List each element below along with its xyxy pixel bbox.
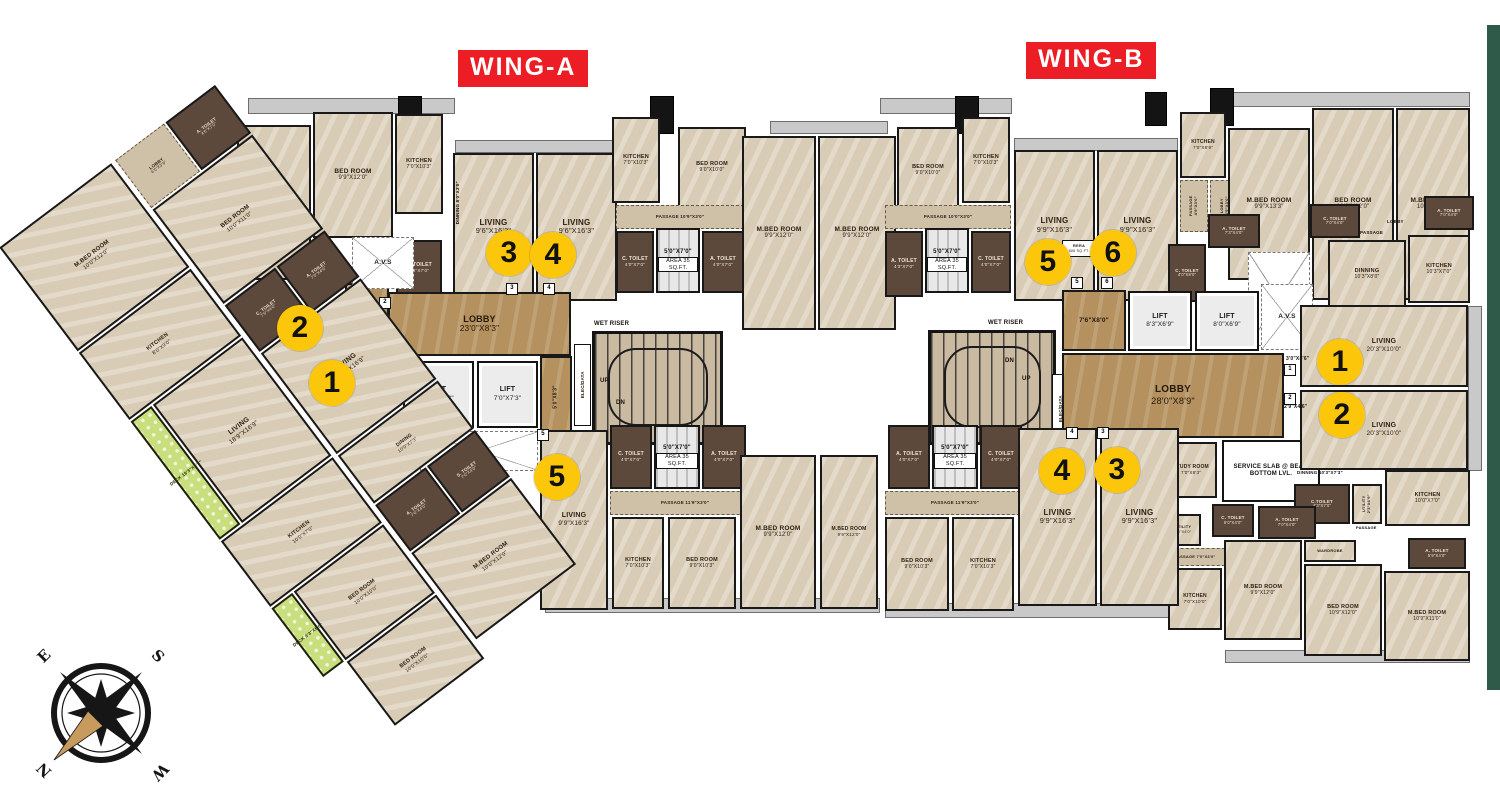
a-toilet: A. TOILET4'0"X7'0" [888, 425, 930, 489]
5-0-x7-0: 5'0"X7'0"AREA 35 SQ.FT. [656, 228, 700, 293]
a-toilet: A. TOILET5'9"X4'0" [1408, 538, 1466, 569]
passage-10-9-x3-0: PASSAGE 10'9"X3'0" [616, 205, 744, 229]
c-toilet: C. TOILET4'0"X7'0" [610, 425, 652, 489]
lift: LIFT8'0"X6'9" [1195, 291, 1259, 351]
wing-b-title: WING-B [1026, 42, 1156, 79]
7-6-x8-0: 7'6"X8'0" [1062, 290, 1126, 351]
balcony [1468, 306, 1482, 471]
kitchen: KITCHEN7'0"X10'3" [612, 517, 664, 609]
kitchen: KITCHEN7'0"X10'3" [612, 117, 660, 203]
wardrobe: WARDROBE [1304, 540, 1356, 562]
5-0-x8-3: 5'0"X8'3" [540, 356, 572, 438]
5-0-x7-0: 5'0"X7'0"AREA 35 SQ.FT. [654, 425, 700, 489]
lift: LIFT8'3"X6'9" [1128, 291, 1192, 351]
elec-data: ELEC/DATA [574, 344, 591, 426]
5-0-x7-0: 5'0"X7'0"AREA 35 SQ.FT. [932, 425, 978, 489]
bed-room: BED ROOM9'0"X10'0" [678, 127, 746, 207]
unit-marker-wing-b-5: 5 [1025, 239, 1071, 285]
passage-10-0-x3-0: PASSAGE 10'0"X3'0" [885, 205, 1011, 229]
bed-room: BED ROOM9'9"X12'0" [313, 112, 393, 238]
living: LIVING9'6"X16'3" [453, 153, 534, 301]
passage-11-9-x3-0: PASSAGE 11'9"X3'0" [885, 491, 1025, 515]
dn: DN [616, 400, 625, 407]
c-toilet: C. TOILET4'0"X7'0" [971, 231, 1011, 293]
m-bed-room: M.BED ROOM9'9"X12'0" [740, 455, 816, 609]
unit-marker-wing-b-3: 3 [1094, 447, 1140, 493]
lobby: LOBBY28'0"X8'9" [1062, 353, 1284, 438]
dinning-10-3-x7-3: DINNING 10'3"X7'3" [1297, 470, 1343, 475]
compass-letter-s: S [148, 646, 168, 666]
kitchen: KITCHEN7'0"X10'3" [395, 114, 443, 214]
wet-riser: WET RISER [988, 320, 1023, 327]
passage-11-9-x3-0: PASSAGE 11'9"X3'0" [610, 491, 760, 515]
bed-room: BED ROOM9'0"X10'3" [668, 517, 736, 609]
unit-marker-wing-b-1: 1 [1317, 339, 1363, 385]
compass-letter-e: E [34, 646, 55, 667]
c-toilet: C. TOILET7'0"X4'0" [1310, 204, 1360, 238]
stair-flight-guide [608, 348, 708, 426]
bed-room: BED ROOM9'0"X10'3" [885, 517, 949, 611]
a-toilet: A. TOILET7'3"X4'0" [1208, 214, 1260, 248]
m-bed-room: M.BED ROOM9'9"X12'0" [742, 136, 816, 330]
bed-room: BED ROOM9'0"X10'0" [897, 127, 959, 213]
passage: PASSAGE [1360, 230, 1383, 235]
living: LIVING9'6"X16'3" [536, 153, 617, 301]
3-0-x8-6: 3'0"X8'6" [1286, 356, 1309, 362]
lift: LIFT7'0"X7'3" [477, 361, 538, 428]
compass-letter-n: N [33, 759, 56, 782]
floor-plan: WING-A WING-B E S W N M.BED ROOM9'9"X13'… [0, 0, 1500, 791]
a-toilet: A. TOILET7'0"X4'0" [1258, 506, 1316, 539]
c-toilet: C. TOILET4'0"X7'0" [980, 425, 1022, 489]
kitchen: KITCHEN7'0"X8'9" [1180, 112, 1226, 178]
a-toilet: A. TOILET4'3"X7'0" [885, 231, 923, 297]
m-bed-room: M.BED ROOM10'9"X11'0" [1384, 571, 1470, 661]
unit-marker-wing-a-2: 2 [277, 305, 323, 351]
door-tag-4: 4 [543, 283, 555, 295]
door-tag-5: 5 [537, 429, 549, 441]
lobby: LOBBY [1387, 219, 1404, 224]
c-toilet: C. TOILET4'0"X7'0" [616, 231, 654, 293]
duct-shaft [1145, 92, 1167, 126]
dinning-8-0-x3-0: DINNING 8'0"X3'0" [436, 200, 479, 205]
a-toilet: A. TOILET7'0"X4'0" [1424, 196, 1474, 230]
site-boundary [1487, 25, 1500, 690]
door-tag-2: 2 [1284, 393, 1296, 405]
compass-rose: E S W N [26, 638, 176, 788]
unit-marker-wing-b-4: 4 [1039, 448, 1085, 494]
lobby: LOBBY23'0"X8'3" [388, 292, 571, 356]
door-tag-6: 6 [1101, 277, 1113, 289]
unit-marker-wing-a-1: 1 [309, 360, 355, 406]
wet-riser: WET RISER [594, 321, 629, 328]
c-toilet: C. TOILET5'0"X4'0" [1212, 504, 1254, 537]
m-bed-room: M.BED ROOM9'9"X12'0" [820, 455, 878, 609]
a-toilet: A. TOILET4'0"X7'0" [702, 231, 744, 293]
balcony [770, 121, 888, 134]
balcony [455, 140, 618, 153]
kitchen: KITCHEN10'3"X7'0" [1408, 235, 1470, 303]
passage: PASSAGE [1356, 526, 1377, 531]
door-tag-5: 5 [1071, 277, 1083, 289]
unit-marker-wing-a-3: 3 [486, 230, 532, 276]
kitchen: KITCHEN7'0"X10'3" [962, 117, 1010, 203]
unit-marker-wing-b-2: 2 [1319, 392, 1365, 438]
kitchen: KITCHEN10'0"X7'0" [1385, 470, 1470, 526]
passage-4-9-x3-0: PASSAGE 4'9"X3'0" [1180, 180, 1208, 232]
balcony [1225, 92, 1470, 107]
door-tag-3: 3 [1097, 427, 1109, 439]
utility-2-3-x6-9: UTILITY 2'3"X6'9" [1352, 484, 1382, 524]
door-tag-4: 4 [1066, 427, 1078, 439]
door-tag-3: 3 [506, 283, 518, 295]
wing-a-title: WING-A [458, 50, 588, 87]
dinning: DINNING10'3"X8'0" [1328, 240, 1406, 308]
kitchen: KITCHEN7'0"X10'3" [952, 517, 1014, 611]
m-bed-room: M.BED ROOM9'9"X12'0" [1224, 540, 1302, 640]
compass-letter-w: W [147, 759, 173, 785]
unit-marker-wing-a-4: 4 [530, 232, 576, 278]
up: UP [600, 378, 609, 385]
dn: DN [1005, 358, 1014, 365]
door-tag-1: 1 [1284, 364, 1296, 376]
unit-marker-wing-b-6: 6 [1090, 230, 1136, 276]
unit-marker-wing-a-5: 5 [534, 454, 580, 500]
bed-room: BED ROOM10'9"X12'0" [1304, 564, 1382, 656]
up: UP [1022, 376, 1031, 383]
5-0-x7-0: 5'0"X7'0"AREA 35 SQ.FT. [925, 228, 969, 293]
balcony [880, 98, 1012, 114]
stair-flight-guide [944, 346, 1041, 428]
